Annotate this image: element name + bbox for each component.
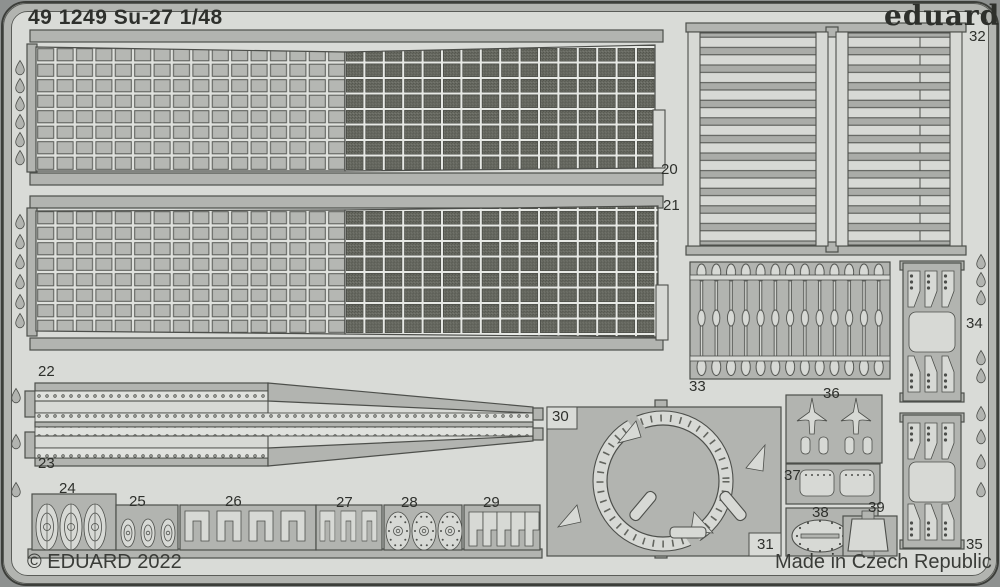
part-number-36: 36 (823, 386, 840, 401)
part-25-small-ovals (116, 505, 178, 550)
sheet-title: 49 1249 Su-27 1/48 (28, 7, 223, 28)
part-number-32: 32 (969, 29, 986, 44)
part-number-27: 27 (336, 495, 353, 510)
part-32-ladder-frames (686, 23, 966, 255)
part-number-31: 31 (757, 537, 774, 552)
part-number-34: 34 (966, 316, 983, 331)
part-number-30: 30 (552, 409, 569, 424)
copyright-text: © EDUARD 2022 (27, 552, 182, 572)
part-26-channel-brackets (180, 505, 316, 550)
part-number-29: 29 (483, 495, 500, 510)
made-in-text: Made in Czech Republic (775, 552, 992, 572)
part-number-22: 22 (38, 364, 55, 379)
part-number-39: 39 (868, 500, 885, 515)
brand-logo: eduard (884, 2, 1000, 30)
part-34-blade-panel (900, 261, 964, 402)
photoetch-sheet-photo: 49 1249 Su-27 1/48 eduard © EDUARD 2022 … (0, 0, 1000, 587)
part-number-26: 26 (225, 494, 242, 509)
part-number-23: 23 (38, 456, 55, 471)
part-number-28: 28 (401, 495, 418, 510)
part-30-31-ring-plate (547, 400, 781, 558)
part-number-21: 21 (663, 198, 680, 213)
part-number-38: 38 (812, 505, 829, 520)
part-20-grille-panel (27, 30, 665, 185)
part-29-step-brackets (464, 505, 540, 550)
part-number-37: 37 (784, 468, 801, 483)
part-number-35: 35 (966, 537, 983, 552)
part-39-trapezoid-part (843, 511, 897, 556)
part-27-channel-brackets (316, 505, 382, 550)
part-number-20: 20 (661, 162, 678, 177)
part-number-25: 25 (129, 494, 146, 509)
part-35-blade-panel (900, 413, 964, 549)
fret-artwork (0, 0, 1000, 587)
part-33-spindle-comb (690, 262, 890, 379)
part-21-grille-panel (27, 196, 668, 350)
part-28-riveted-ovals (384, 505, 462, 550)
part-number-33: 33 (689, 379, 706, 394)
part-36-dart-fittings (786, 395, 882, 463)
part-number-24: 24 (59, 481, 76, 496)
